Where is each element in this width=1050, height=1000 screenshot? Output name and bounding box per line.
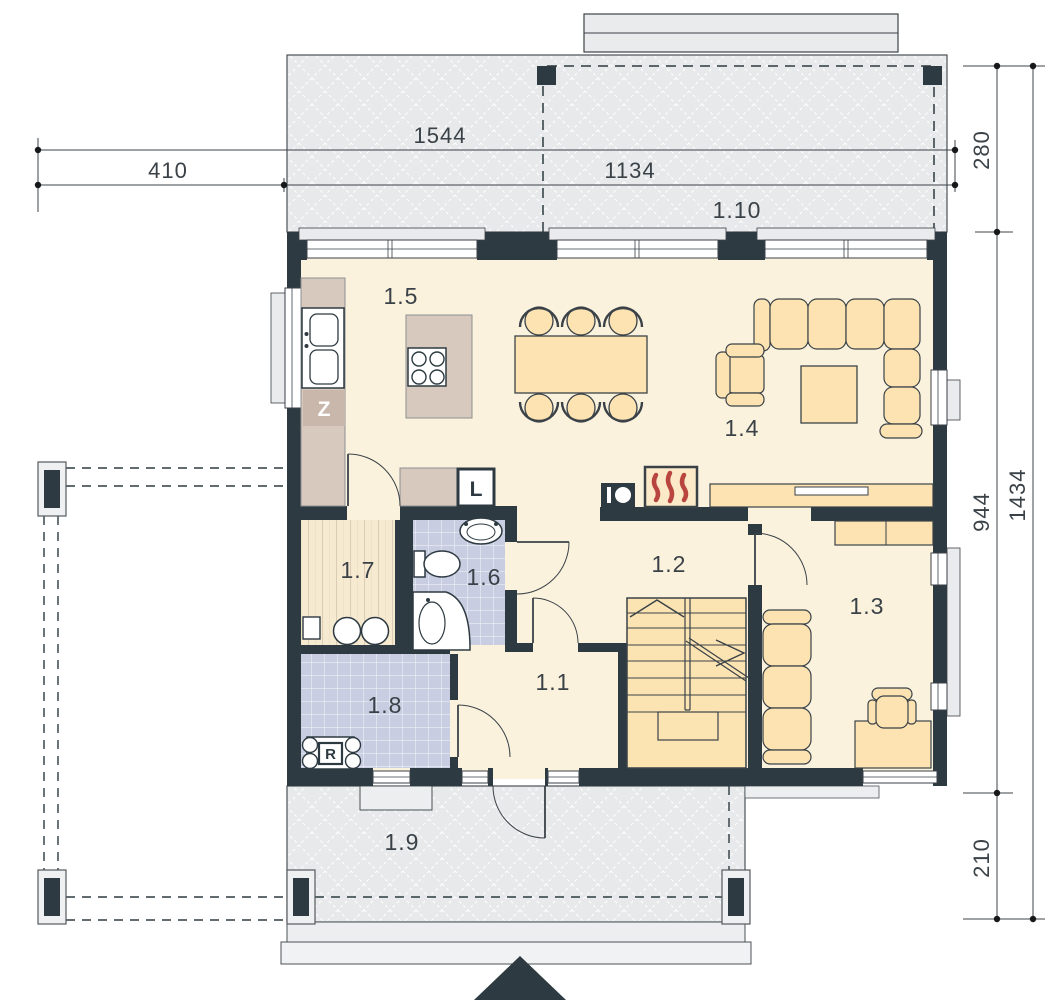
tv (795, 487, 868, 495)
staircase (627, 598, 749, 768)
kitchen-island (406, 315, 472, 418)
pergola-post-bottom-left (38, 870, 66, 924)
floor-plan-drawing: 1544 410 1134 1.10 280 944 1434 210 1.9 (0, 0, 1050, 1000)
dim-left-extension: 410 (148, 158, 188, 183)
wardrobe (835, 521, 933, 545)
rear-post-right (923, 66, 942, 85)
toilet (414, 551, 460, 577)
office-chair (868, 688, 916, 728)
room-label-stair-hall: 1.2 (652, 551, 687, 577)
sofa-room (763, 610, 811, 764)
fireplace (645, 467, 697, 507)
fridge: L (458, 469, 494, 506)
windows-north-wall (299, 228, 935, 258)
fridge-label: L (470, 478, 483, 501)
room-label-utility: 1.8 (368, 692, 403, 718)
dim-main-width: 1134 (604, 158, 655, 183)
room-label-bathroom: 1.6 (467, 564, 502, 590)
utility-stoop (360, 786, 432, 810)
dim-total-depth: 1434 (1005, 469, 1030, 522)
front-terrace-area (287, 786, 745, 922)
tv-console (710, 484, 933, 507)
dishwasher-label: Z (318, 398, 331, 421)
washbasin (460, 518, 502, 544)
rear-terrace-area (287, 55, 947, 232)
room-label-living-room: 1.4 (725, 415, 760, 441)
kitchen-sink (302, 308, 344, 388)
coffee-table (801, 366, 857, 423)
dim-total-width: 1544 (414, 123, 467, 148)
boiler-label: R (325, 746, 336, 763)
room-label-pantry: 1.7 (341, 557, 376, 583)
boiler: R (303, 737, 361, 769)
footing-right (745, 786, 879, 798)
room-label-front-terrace: 1.9 (385, 829, 420, 855)
rear-post-left (537, 66, 556, 85)
dining-table (515, 336, 647, 393)
roof-dormer-outline (584, 14, 898, 52)
room-label-rear-terrace: 1.10 (713, 197, 762, 223)
stove-equipment-icon (601, 483, 635, 507)
armchair (716, 344, 764, 406)
dim-house-depth: 944 (969, 492, 994, 532)
room-label-kitchen: 1.5 (384, 283, 419, 309)
room-label-room: 1.3 (850, 593, 885, 619)
kitchen-lower-cabinet (400, 468, 458, 506)
dim-front-terrace-depth: 210 (969, 838, 994, 878)
terrace-post-right (722, 870, 750, 924)
window-west-kitchen (271, 288, 301, 408)
pergola-post-top-left (38, 462, 66, 516)
room-label-hall: 1.1 (536, 669, 571, 695)
terrace-step-1 (287, 922, 745, 942)
dishwasher: Z (303, 390, 345, 426)
floor-plan-page: 1544 410 1134 1.10 280 944 1434 210 1.9 (0, 0, 1050, 1000)
dining-set (515, 307, 647, 422)
terrace-post-left (287, 870, 315, 924)
dim-rear-terrace-depth: 280 (969, 130, 994, 170)
